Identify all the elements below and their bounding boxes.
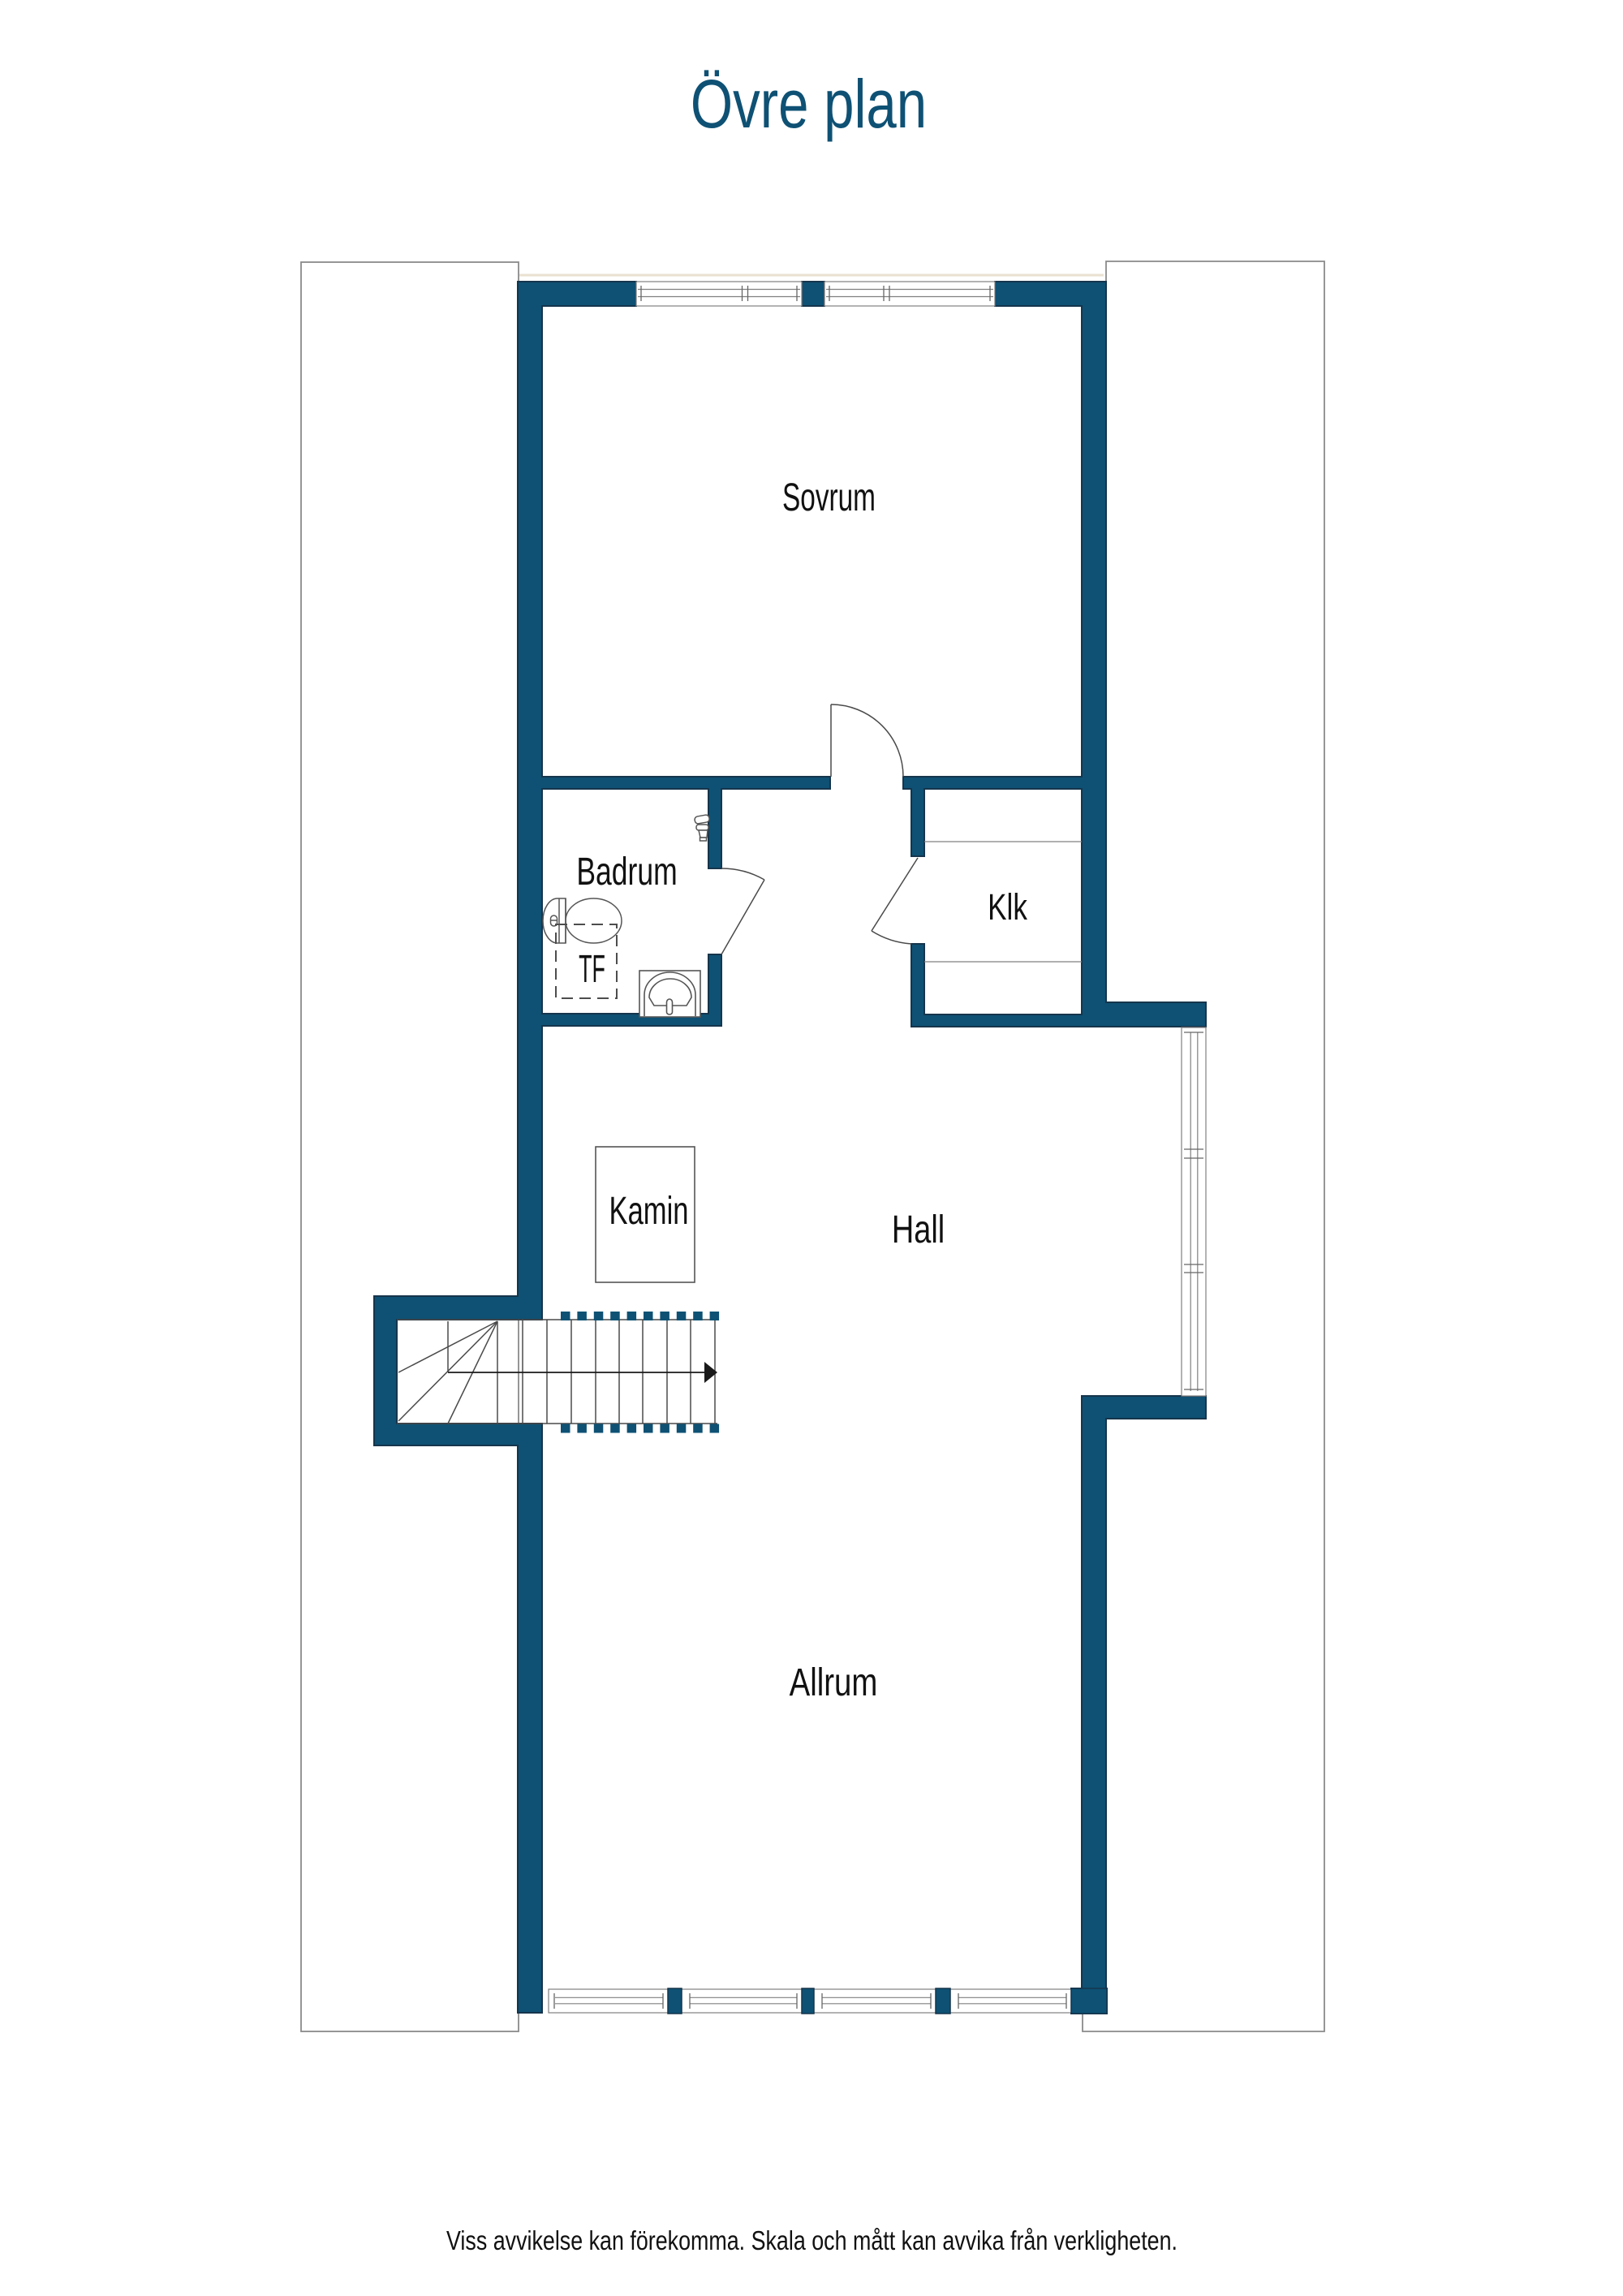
svg-text:Badrum: Badrum (576, 850, 677, 893)
svg-text:Kamin: Kamin (609, 1188, 689, 1232)
svg-text:Hall: Hall (892, 1208, 945, 1251)
svg-text:Sovrum: Sovrum (782, 476, 876, 519)
svg-text:Övre plan: Övre plan (691, 67, 927, 143)
svg-text:Viss avvikelse kan förekomma.: Viss avvikelse kan förekomma. Skala och … (446, 2226, 1177, 2255)
svg-text:Allrum: Allrum (790, 1661, 878, 1704)
svg-text:Klk: Klk (988, 886, 1027, 928)
svg-text:TF: TF (579, 948, 605, 991)
